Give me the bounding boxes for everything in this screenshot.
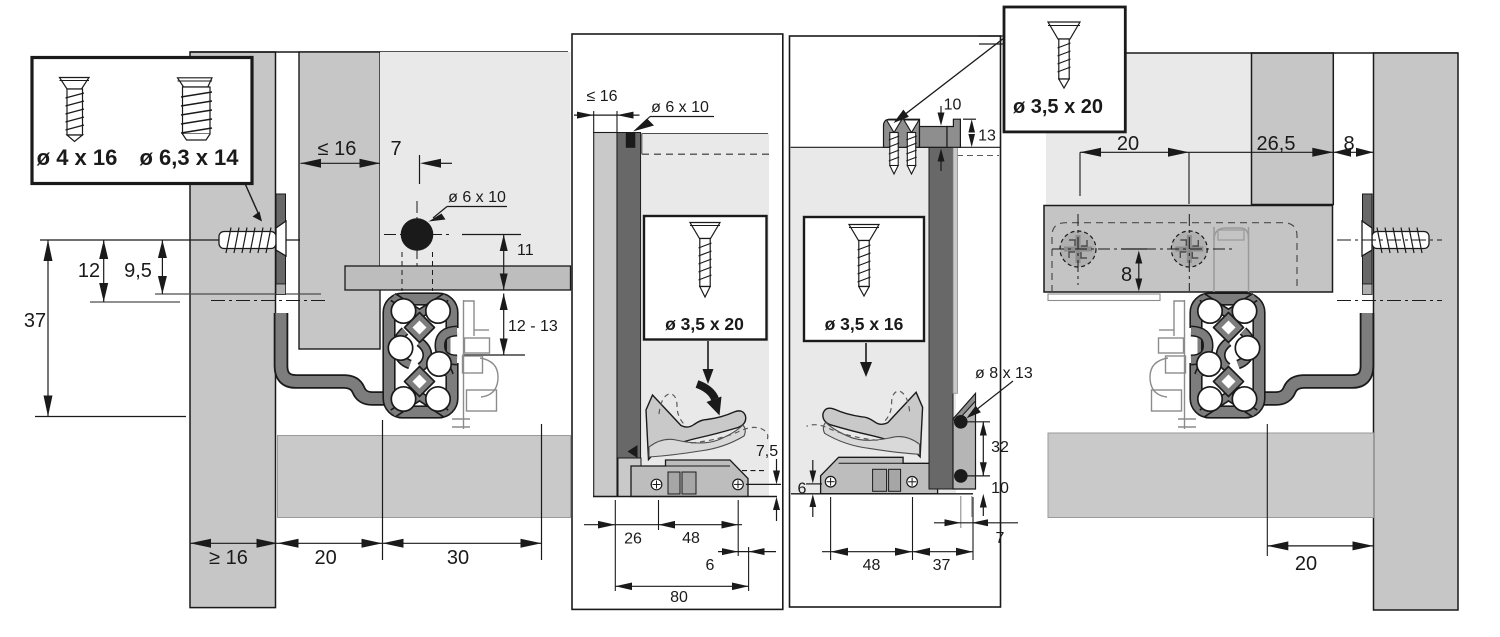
svg-text:8: 8	[1343, 133, 1354, 155]
svg-text:8: 8	[1121, 264, 1132, 286]
svg-text:37: 37	[933, 557, 951, 574]
svg-text:7,5: 7,5	[756, 443, 778, 460]
svg-text:ø 3,5 x 20: ø 3,5 x 20	[665, 314, 744, 334]
svg-text:13: 13	[978, 128, 996, 145]
svg-text:12: 12	[78, 260, 100, 282]
svg-text:30: 30	[447, 547, 469, 569]
svg-text:26: 26	[624, 531, 642, 548]
svg-text:ø 3,5 x 16: ø 3,5 x 16	[825, 314, 904, 334]
svg-text:20: 20	[1295, 553, 1317, 575]
svg-text:11: 11	[517, 242, 534, 259]
svg-text:20: 20	[314, 547, 336, 569]
svg-text:≤ 16: ≤ 16	[586, 88, 617, 105]
svg-text:ø 6 x 10: ø 6 x 10	[651, 99, 709, 116]
svg-text:6: 6	[798, 481, 807, 498]
svg-text:12 - 13: 12 - 13	[508, 318, 558, 335]
svg-text:ø 3,5 x 20: ø 3,5 x 20	[1013, 96, 1103, 118]
svg-text:20: 20	[1117, 133, 1139, 155]
svg-text:6: 6	[706, 557, 715, 574]
svg-text:37: 37	[24, 310, 46, 332]
svg-text:48: 48	[682, 530, 700, 547]
svg-text:ø 8 x 13: ø 8 x 13	[975, 365, 1033, 382]
svg-text:26,5: 26,5	[1257, 133, 1296, 155]
svg-text:ø 4 x 16: ø 4 x 16	[37, 145, 118, 170]
svg-text:ø 6,3 x 14: ø 6,3 x 14	[139, 145, 239, 170]
svg-text:≤ 16: ≤ 16	[318, 138, 357, 160]
svg-text:7: 7	[390, 138, 401, 160]
svg-text:80: 80	[670, 589, 688, 606]
svg-text:ø 6 x 10: ø 6 x 10	[448, 189, 506, 206]
svg-text:9,5: 9,5	[124, 260, 152, 282]
svg-text:10: 10	[991, 480, 1009, 497]
svg-text:7: 7	[996, 530, 1005, 547]
svg-text:≥ 16: ≥ 16	[209, 547, 248, 569]
svg-text:48: 48	[863, 557, 881, 574]
svg-text:10: 10	[944, 97, 962, 114]
svg-text:32: 32	[991, 439, 1009, 456]
